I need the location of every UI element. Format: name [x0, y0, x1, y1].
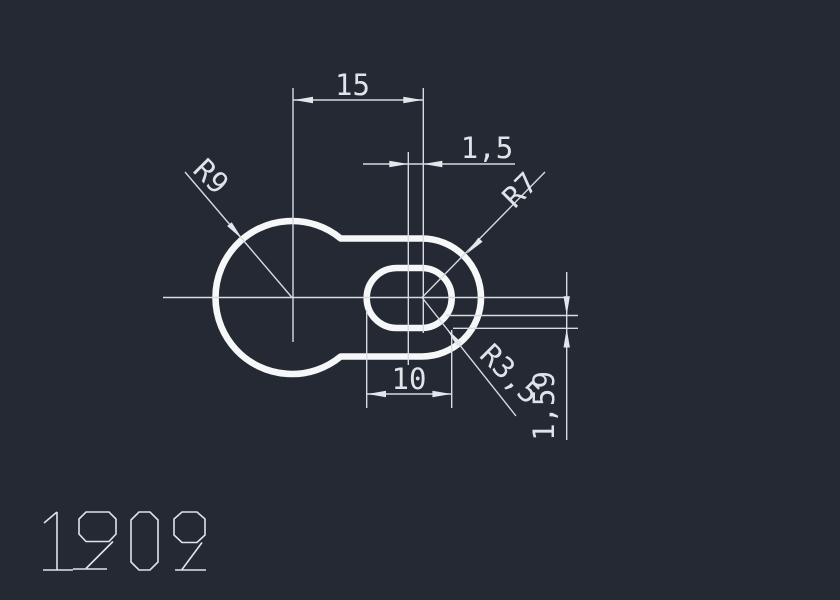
dimension-value: 15: [335, 68, 370, 102]
dimension-value: 1,5: [461, 131, 513, 165]
dimension-value: 10: [392, 362, 427, 396]
cad-viewport[interactable]: 15 1,5 10 1,59 R9 R7: [0, 0, 840, 600]
canvas-background: [0, 0, 840, 600]
drawing-canvas: 15 1,5 10 1,59 R9 R7: [0, 0, 840, 600]
